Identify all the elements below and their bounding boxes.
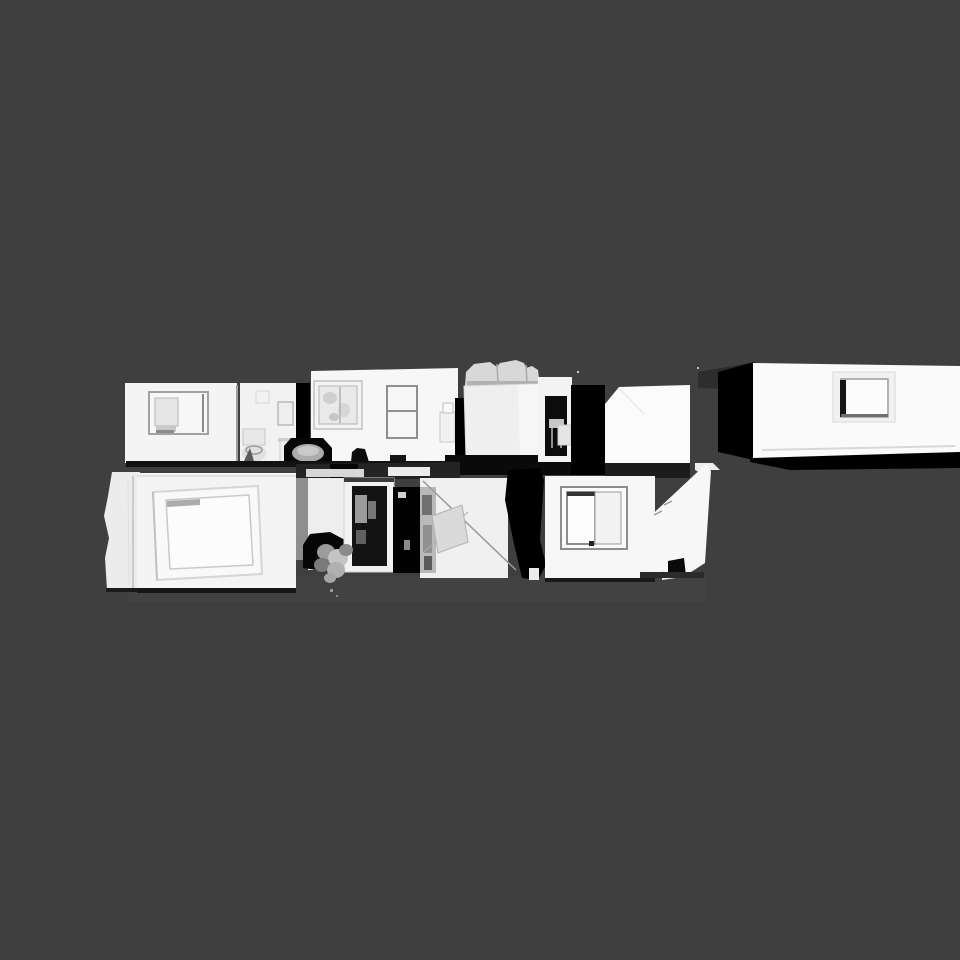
porch-under-shadow	[640, 572, 704, 578]
door-mottle-1	[355, 495, 367, 523]
dust-speck-2	[697, 367, 699, 369]
plant-speck-2	[336, 595, 338, 597]
plant-leaf-5	[339, 544, 353, 556]
plant-speck-1	[330, 589, 333, 592]
box-window-bottom-bar	[841, 414, 888, 417]
black-column-shadow	[571, 385, 605, 475]
dust-speck-1	[577, 371, 579, 373]
bedroom-bottom-shadow	[137, 588, 296, 593]
column2-speck-1	[398, 492, 406, 498]
house-section-mesh-render	[0, 0, 960, 960]
pillow-crease-1	[497, 364, 498, 383]
toilet-tank	[243, 429, 265, 445]
window-c1-mottle-3	[329, 413, 339, 421]
window-a-pane	[155, 398, 178, 426]
pillow-crease-2	[526, 365, 527, 383]
box-window-dark-edge	[840, 380, 846, 417]
door-frame-top	[344, 478, 394, 482]
bed1-side	[518, 384, 540, 457]
window-c1-mottle-1	[323, 392, 337, 404]
dark-mark-under-c2	[390, 455, 406, 462]
window-m-dot	[589, 541, 594, 546]
wall-gap-shadow	[296, 383, 310, 440]
plant-leaf-6	[324, 573, 336, 583]
hallway-mottle-1	[422, 495, 432, 515]
right-wedge-black	[718, 362, 754, 460]
lower-left-column-shadow	[106, 588, 140, 592]
slab-light-fragment-1	[306, 469, 364, 477]
bath-mirror	[278, 402, 293, 425]
door-mottle-3	[356, 530, 366, 544]
column2-speck-2	[404, 540, 410, 550]
box-window-inner	[841, 379, 888, 417]
gable-under-slab	[605, 463, 690, 478]
lamp-pillar	[440, 412, 455, 442]
lower-left-column	[104, 472, 140, 590]
gable-structure	[605, 385, 690, 463]
window-m-right-pane	[595, 492, 621, 544]
window-a-sill-dark	[156, 430, 174, 433]
black-column-2	[393, 487, 421, 573]
blob-white-sliver	[529, 568, 539, 580]
window-room-bottom-shadow	[545, 578, 655, 582]
basin-f	[558, 425, 571, 445]
mesh-viewport[interactable]	[0, 0, 960, 960]
vanity-bowl-highlight	[297, 446, 319, 456]
window-m-left-pane	[567, 492, 595, 544]
hallway-mottle-3	[424, 556, 432, 570]
lamp-head	[443, 403, 453, 413]
table-f-leg-1	[551, 428, 553, 448]
bedroom-top-line	[137, 475, 296, 477]
door-mottle-2	[368, 501, 376, 519]
slab-light-fragment-2	[388, 467, 430, 476]
window-m-left-pane-top	[567, 492, 595, 496]
